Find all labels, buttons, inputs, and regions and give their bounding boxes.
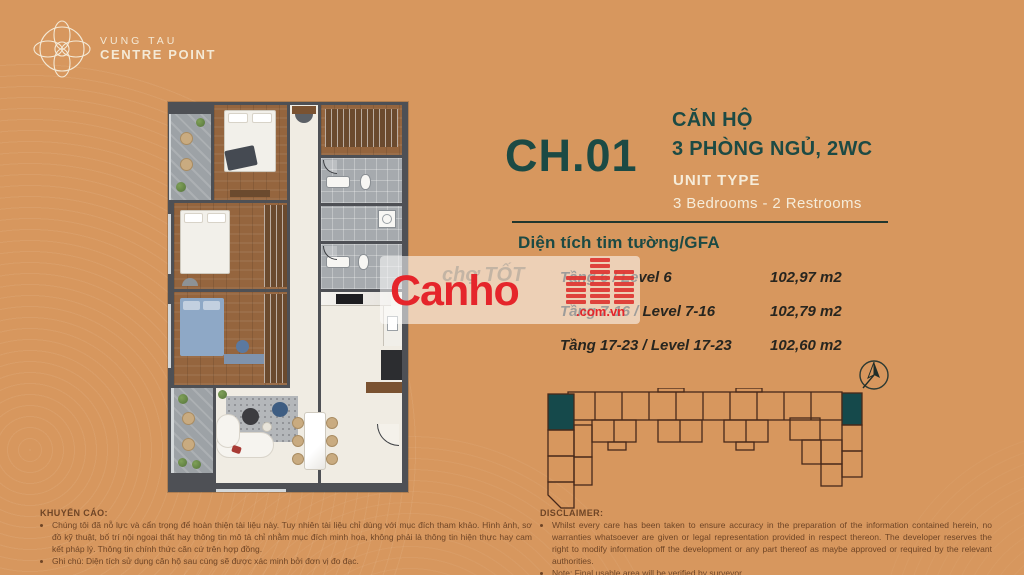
disclaimer-heading: DISCLAIMER: (540, 508, 992, 518)
window (168, 214, 171, 274)
dining-chair (326, 417, 338, 429)
window (168, 304, 171, 368)
plant (178, 394, 188, 404)
desk (224, 354, 264, 364)
pillow-blue (203, 301, 220, 310)
pillow (184, 213, 203, 223)
washer-drum (382, 214, 392, 224)
sofa-chaise (216, 414, 240, 448)
advisory-heading: KHUYẾN CÁO: (40, 508, 532, 518)
toilet (360, 174, 371, 190)
divider-line (512, 221, 888, 223)
unit-title-vi-line1: CĂN HỘ (672, 106, 872, 135)
advisory-bullet: Ghi chú: Diện tích sử dụng căn hộ sau cù… (52, 556, 532, 568)
dining-chair (292, 453, 304, 465)
compass-icon (853, 356, 895, 398)
floor-plan (168, 102, 408, 492)
window (216, 489, 286, 492)
unit-title-vi-line2: 3 PHÒNG NGỦ, 2WC (672, 135, 872, 164)
bedroom-2-closet (264, 205, 287, 287)
sink (326, 176, 350, 188)
watermark-site-name: Canho (390, 270, 519, 313)
advisory-bullet: Chúng tôi đã nỗ lực và cẩn trọng để hoàn… (52, 520, 532, 556)
pillow (207, 213, 226, 223)
balcony-2-railing (171, 388, 174, 473)
dining-chair (326, 435, 338, 447)
fridge (381, 350, 402, 380)
entry-door-gap (399, 424, 402, 458)
disclaimer-bullet: Whilst every care has been taken to ensu… (552, 520, 992, 568)
side-table (262, 422, 272, 432)
watermark-building-icon (566, 252, 636, 304)
hallway (290, 105, 318, 388)
unit-type: UNIT TYPE 3 Bedrooms - 2 Restrooms (673, 170, 862, 215)
wardrobe-cabinet (325, 109, 398, 147)
cooktop (336, 294, 363, 304)
gfa-row-value: 102,97 m2 (770, 269, 842, 286)
toilet (358, 254, 369, 270)
pillow (252, 113, 272, 123)
desk-chair (236, 340, 249, 353)
unit-type-label: UNIT TYPE (673, 170, 862, 193)
gfa-row-value: 102,60 m2 (770, 337, 842, 354)
page: VUNG TAU CENTRE POINT (0, 0, 1024, 575)
bar-counter (366, 382, 402, 393)
plant (218, 390, 227, 399)
unit-type-value: 3 Bedrooms - 2 Restrooms (673, 193, 862, 216)
unit-code: CH.01 (505, 130, 638, 182)
watermark-domain: .com.vn (576, 304, 625, 319)
dining-chair (292, 417, 304, 429)
balcony-1-railing (169, 114, 171, 200)
advisory-block: KHUYẾN CÁO: Chúng tôi đã nỗ lực và cẩn t… (40, 508, 532, 568)
dining-chair (326, 453, 338, 465)
watermark: chợ TỐT Canho .com.vn (380, 256, 640, 324)
gfa-row-value: 102,79 m2 (770, 303, 842, 320)
brand-name-line1: VUNG TAU (100, 36, 216, 48)
lotus-ornament-icon (30, 16, 94, 82)
pillow (228, 113, 248, 123)
brand-name-line2: CENTRE POINT (100, 48, 216, 62)
console-table (292, 106, 316, 114)
gfa-row: Tầng 17-23 / Level 17-23 102,60 m2 (560, 337, 890, 354)
dining-chair (292, 435, 304, 447)
rattan-chair (180, 158, 193, 171)
brand-logo: VUNG TAU CENTRE POINT (30, 16, 216, 82)
disclaimer-bullet: Note: Final usable area will be verified… (552, 568, 992, 575)
unit-title-vi: CĂN HỘ 3 PHÒNG NGỦ, 2WC (672, 106, 872, 164)
rattan-chair (180, 132, 193, 145)
plant (196, 118, 205, 127)
coffee-table (242, 408, 259, 425)
building-key-plan (540, 388, 880, 513)
plant (178, 458, 187, 467)
disclaimer-block: DISCLAIMER: Whilst every care has been t… (540, 508, 992, 575)
plant (192, 460, 201, 469)
gfa-row-label: Tầng 17-23 / Level 17-23 (560, 337, 732, 354)
dresser (230, 190, 270, 197)
plant (176, 182, 186, 192)
rattan-chair (182, 412, 195, 425)
dining-table (304, 412, 326, 470)
pillow-blue (183, 301, 200, 310)
armchair-blue (272, 402, 288, 417)
rattan-chair (182, 438, 195, 451)
bedroom-3-closet (264, 294, 287, 383)
gfa-heading: Diện tích tim tường/GFA (518, 233, 720, 253)
